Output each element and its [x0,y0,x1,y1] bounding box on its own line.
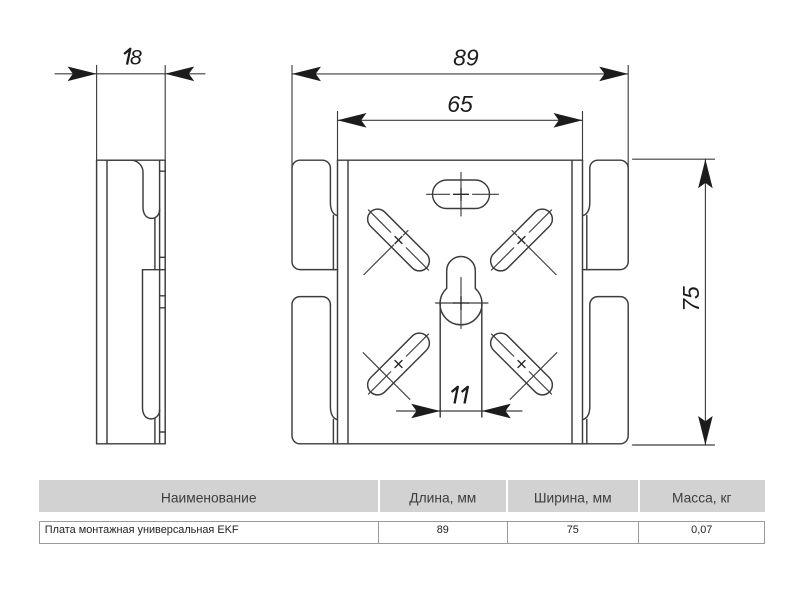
svg-text:65: 65 [447,91,473,117]
svg-text:75: 75 [678,286,704,312]
svg-text:89: 89 [453,45,479,71]
svg-text:8: 8 [130,46,142,70]
